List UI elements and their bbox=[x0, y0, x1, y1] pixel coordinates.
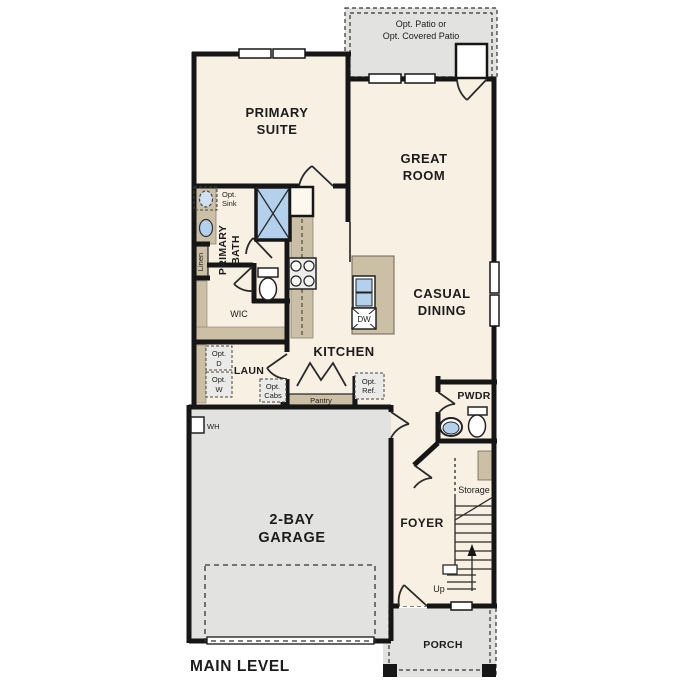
stove-burner bbox=[291, 261, 301, 271]
pantry-label: Pantry bbox=[310, 396, 332, 405]
powder-sink-basin bbox=[443, 422, 459, 434]
room-label-porch: PORCH bbox=[423, 639, 462, 651]
opt-ref-label-2: Ref. bbox=[362, 386, 376, 395]
room-label-great-room-2: ROOM bbox=[403, 168, 445, 183]
room-label-great-room-1: GREAT bbox=[400, 151, 447, 166]
room-label-kitchen: KITCHEN bbox=[313, 344, 374, 359]
patio-door-landing bbox=[456, 44, 487, 78]
window-dining-2 bbox=[490, 295, 499, 326]
water-heater-label: WH bbox=[207, 422, 220, 431]
linen-label: Linen bbox=[196, 253, 205, 271]
stove-burner bbox=[304, 261, 314, 271]
hall-closet bbox=[290, 187, 313, 216]
bath-sink-optional bbox=[200, 191, 213, 207]
powder-toilet-bowl bbox=[469, 415, 486, 437]
dishwasher-label: DW bbox=[357, 315, 371, 324]
stove-burner bbox=[291, 276, 301, 286]
island-sink-basin-1 bbox=[356, 279, 372, 292]
room-label-primary-bath-1: PRIMARY bbox=[217, 225, 229, 275]
window-foyer bbox=[451, 602, 472, 610]
bath-sink bbox=[200, 220, 213, 237]
stairs-up-label: Up bbox=[433, 584, 445, 594]
floor-plan-drawing: Opt. Patio or Opt. Covered Patio PRIMARY… bbox=[0, 0, 687, 687]
floor-plan-page: Opt. Patio or Opt. Covered Patio PRIMARY… bbox=[0, 0, 687, 687]
stair-landing bbox=[443, 565, 457, 574]
opt-sink-label-1: Opt. bbox=[222, 190, 236, 199]
porch-post-left bbox=[383, 664, 397, 677]
room-label-casual-dining-1: CASUAL bbox=[413, 286, 470, 301]
water-heater-box bbox=[191, 417, 204, 433]
room-label-garage-2: GARAGE bbox=[258, 530, 325, 546]
laundry-counter bbox=[196, 345, 206, 403]
opt-washer-label-1: Opt. bbox=[212, 375, 226, 384]
room-label-primary-suite-2: SUITE bbox=[257, 122, 298, 137]
opt-sink-label-2: Sink bbox=[222, 199, 237, 208]
room-label-primary-suite-1: PRIMARY bbox=[246, 105, 309, 120]
bath-toilet-bowl bbox=[260, 278, 277, 300]
storage-label: Storage bbox=[458, 485, 490, 495]
patio-label-line1: Opt. Patio or bbox=[396, 19, 447, 29]
window-suite-2 bbox=[273, 49, 305, 58]
opt-dryer-label-2: D bbox=[216, 359, 222, 368]
plan-title: MAIN LEVEL bbox=[190, 658, 290, 675]
window-suite-1 bbox=[239, 49, 271, 58]
island-sink-basin-2 bbox=[356, 293, 372, 306]
opt-ref-label-1: Opt. bbox=[362, 377, 376, 386]
window-greatroom-2 bbox=[405, 74, 435, 83]
bath-toilet-tank bbox=[258, 268, 278, 277]
room-label-primary-bath-2: BATH bbox=[230, 235, 242, 265]
wic-shelf-bottom bbox=[196, 327, 288, 340]
window-dining-1 bbox=[490, 262, 499, 293]
room-label-foyer: FOYER bbox=[400, 516, 443, 530]
opt-washer-label-2: W bbox=[215, 385, 223, 394]
opt-cabs-label-2: Cabs bbox=[264, 391, 282, 400]
wic-label: WIC bbox=[230, 309, 248, 319]
room-label-casual-dining-2: DINING bbox=[418, 303, 467, 318]
laundry-label: LAUN bbox=[234, 365, 264, 377]
opt-dryer-label-1: Opt. bbox=[212, 349, 226, 358]
window-greatroom-1 bbox=[369, 74, 401, 83]
powder-toilet-tank bbox=[468, 407, 487, 415]
patio-label-line2: Opt. Covered Patio bbox=[383, 31, 460, 41]
room-label-powder: PWDR bbox=[457, 390, 490, 402]
room-label-garage-1: 2-BAY bbox=[269, 512, 314, 528]
opt-cabs-label-1: Opt. bbox=[266, 382, 280, 391]
stove-burner bbox=[304, 276, 314, 286]
porch-post-right bbox=[482, 664, 496, 677]
